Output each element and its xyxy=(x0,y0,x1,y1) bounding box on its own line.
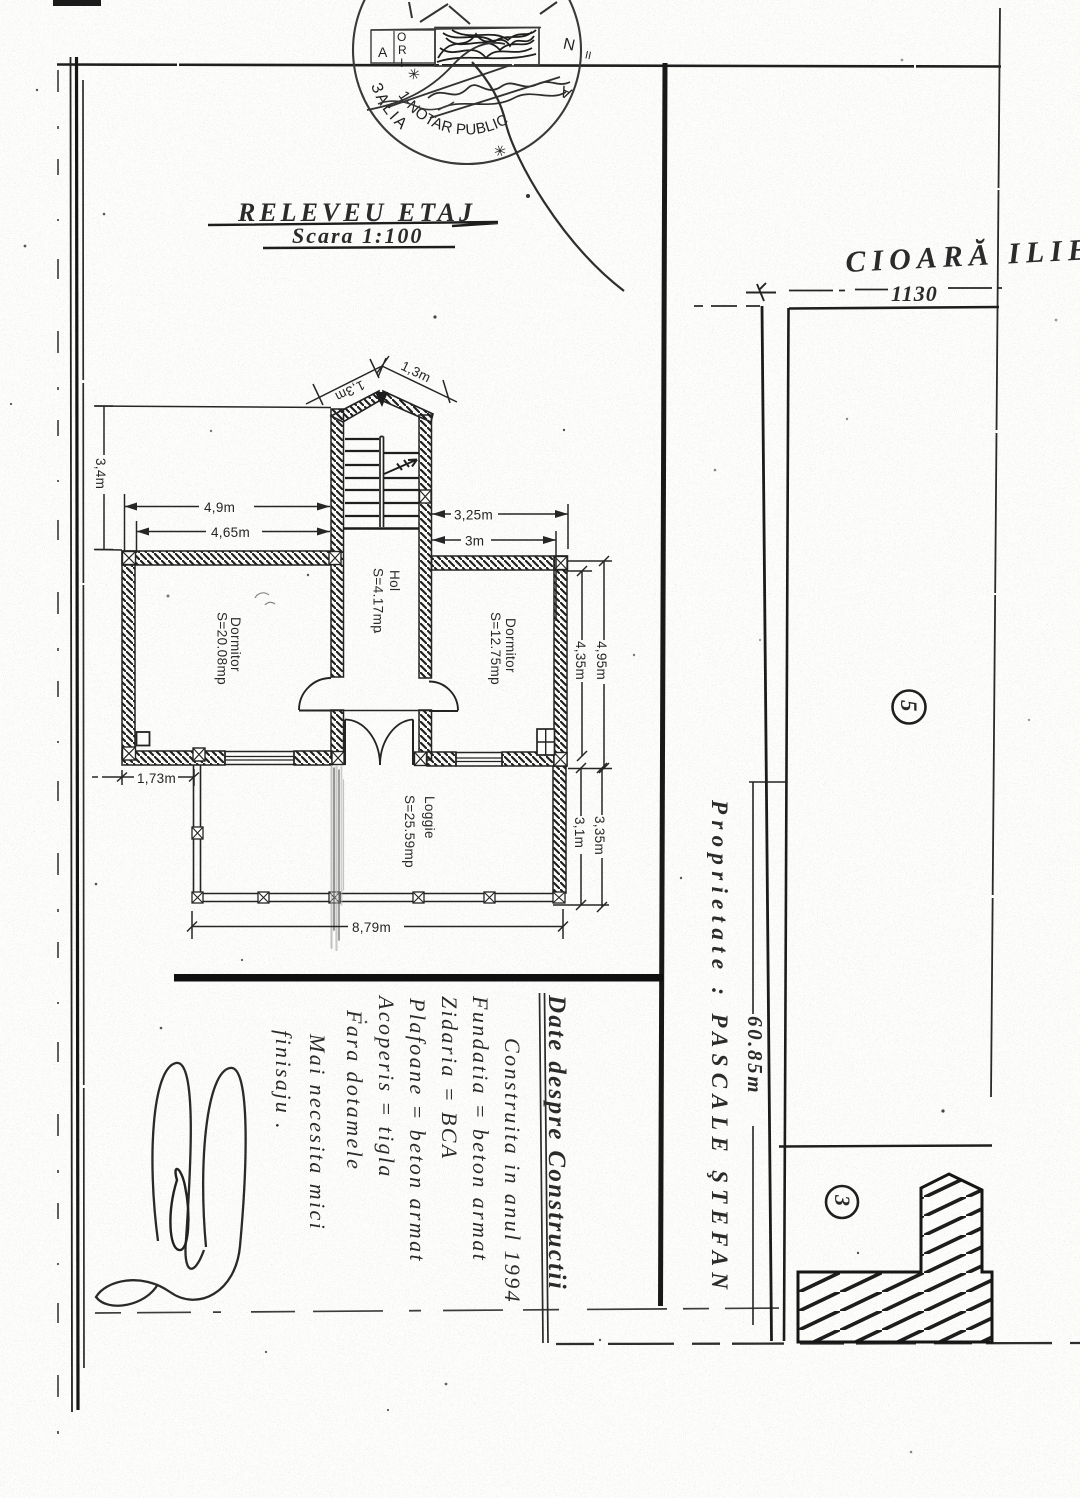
svg-text:3,25m: 3,25m xyxy=(454,508,493,523)
svg-text:Fara dotamele: Fara dotamele xyxy=(342,1009,367,1171)
svg-text:4,9m: 4,9m xyxy=(204,500,235,515)
svg-text:Proprietate : PASCALE ŞTEFAN: Proprietate : PASCALE ŞTEFAN xyxy=(707,799,732,1295)
svg-text:Fundatia = beton armat: Fundatia = beton armat xyxy=(468,995,493,1262)
svg-text:4,65m: 4,65m xyxy=(211,525,250,540)
svg-text:Dormitor: Dormitor xyxy=(503,618,518,673)
svg-text:60.85m: 60.85m xyxy=(743,1016,767,1095)
svg-text:Construita in anul 1994: Construita in anul 1994 xyxy=(500,1038,525,1304)
svg-text:3m: 3m xyxy=(465,534,484,549)
svg-text:1130: 1130 xyxy=(891,281,938,306)
svg-text:Loggie: Loggie xyxy=(422,796,437,839)
svg-text:R: R xyxy=(398,43,407,57)
svg-text:4,35m: 4,35m xyxy=(573,641,588,680)
svg-text:3,4m: 3,4m xyxy=(93,458,108,489)
svg-text:O: O xyxy=(397,30,406,44)
svg-text:I: I xyxy=(400,56,403,70)
svg-text:S=25.59mp: S=25.59mp xyxy=(402,795,417,868)
svg-text:Hol: Hol xyxy=(387,570,402,591)
svg-text:S=20.08mp: S=20.08mp xyxy=(215,612,230,685)
svg-text:S=12.75mp: S=12.75mp xyxy=(488,612,503,685)
svg-text:8,79m: 8,79m xyxy=(352,920,391,935)
svg-text:3,35m: 3,35m xyxy=(592,816,607,855)
svg-text:finisaju .: finisaju . xyxy=(271,1030,296,1131)
svg-text:Acoperis = tigla: Acoperis = tigla xyxy=(374,994,399,1179)
svg-text:S=4.17mp: S=4.17mp xyxy=(371,568,386,633)
svg-text:5: 5 xyxy=(896,700,921,712)
svg-text:3: 3 xyxy=(830,1194,855,1206)
svg-text:1,73m: 1,73m xyxy=(137,771,176,786)
svg-text:Scara 1:100: Scara 1:100 xyxy=(292,223,423,248)
svg-text:Mai necesita mici: Mai necesita mici xyxy=(305,1033,330,1231)
svg-text:A: A xyxy=(378,44,388,60)
svg-text:3,1m: 3,1m xyxy=(572,817,587,848)
svg-text:Plafoane = beton armat: Plafoane = beton armat xyxy=(405,997,430,1263)
svg-text:4,95m: 4,95m xyxy=(594,641,609,680)
svg-text:Zidaria = BCA: Zidaria = BCA xyxy=(437,996,462,1161)
